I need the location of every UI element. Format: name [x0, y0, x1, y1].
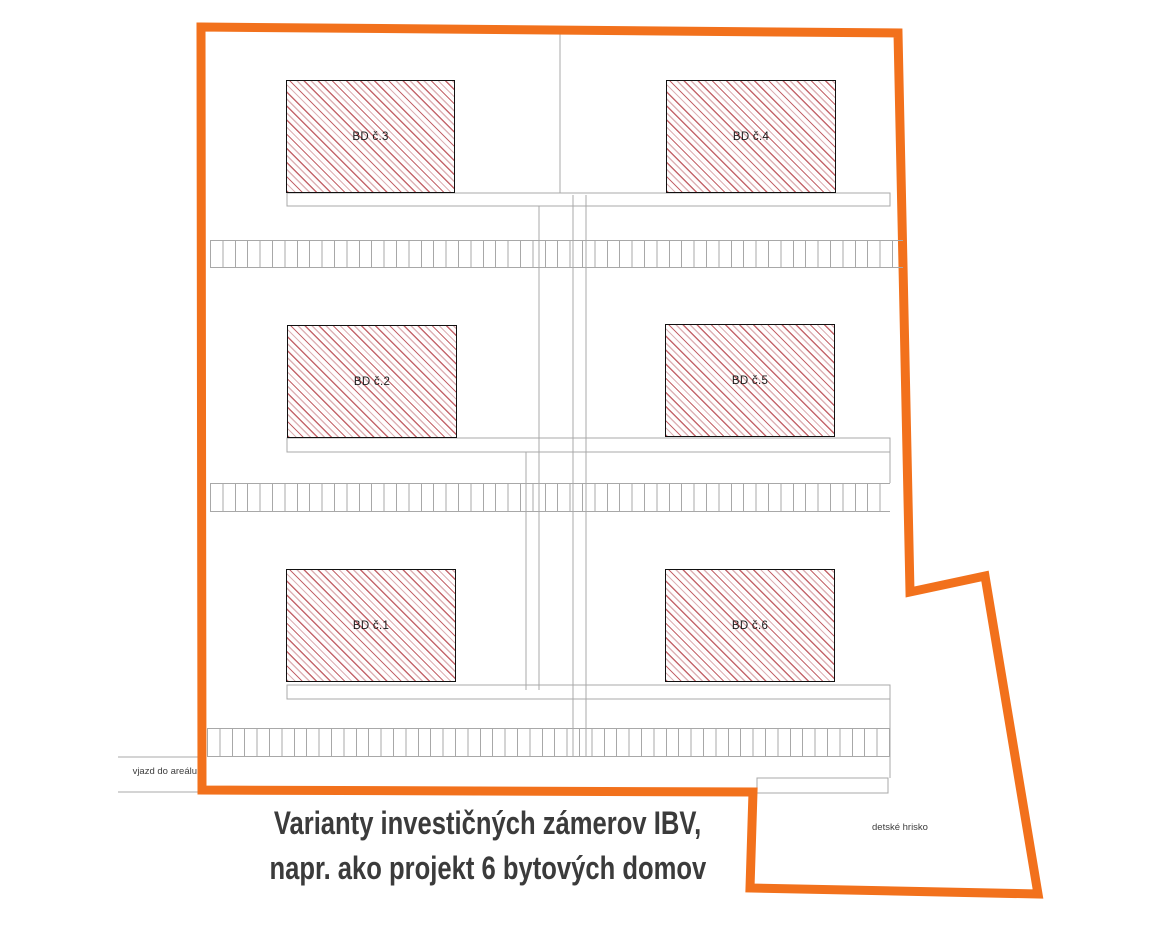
caption-line-2: napr. ako projekt 6 bytových domov: [270, 846, 706, 891]
entrance-label: vjazd do areálu: [55, 766, 197, 777]
building-bd1: BD č.1: [286, 569, 456, 682]
road-strip-row3: [287, 685, 890, 699]
building-label-bd4: BD č.4: [733, 131, 769, 143]
road-strip-row2: [287, 438, 890, 452]
building-label-bd2: BD č.2: [354, 376, 390, 388]
building-label-bd6: BD č.6: [732, 620, 768, 632]
parking-row-1: [210, 240, 903, 268]
building-label-bd1: BD č.1: [353, 620, 389, 632]
building-bd6: BD č.6: [665, 569, 835, 682]
caption-line-1: Varianty investičných zámerov IBV,: [270, 801, 706, 846]
building-bd3: BD č.3: [286, 80, 455, 193]
road-strip-row1: [287, 193, 890, 206]
building-label-bd3: BD č.3: [352, 131, 388, 143]
building-label-bd5: BD č.5: [732, 375, 768, 387]
caption: Varianty investičných zámerov IBV, napr.…: [270, 801, 706, 891]
parking-row-3: [207, 728, 890, 757]
playground-label: detské hrisko: [872, 822, 928, 833]
site-plan-canvas: BD č.3 BD č.4 BD č.2 BD č.5 BD č.1 BD č.…: [0, 0, 1159, 946]
playground-pad: [757, 778, 888, 793]
building-bd5: BD č.5: [665, 324, 835, 437]
building-bd4: BD č.4: [666, 80, 836, 193]
parking-row-2: [210, 483, 890, 512]
building-bd2: BD č.2: [287, 325, 457, 438]
